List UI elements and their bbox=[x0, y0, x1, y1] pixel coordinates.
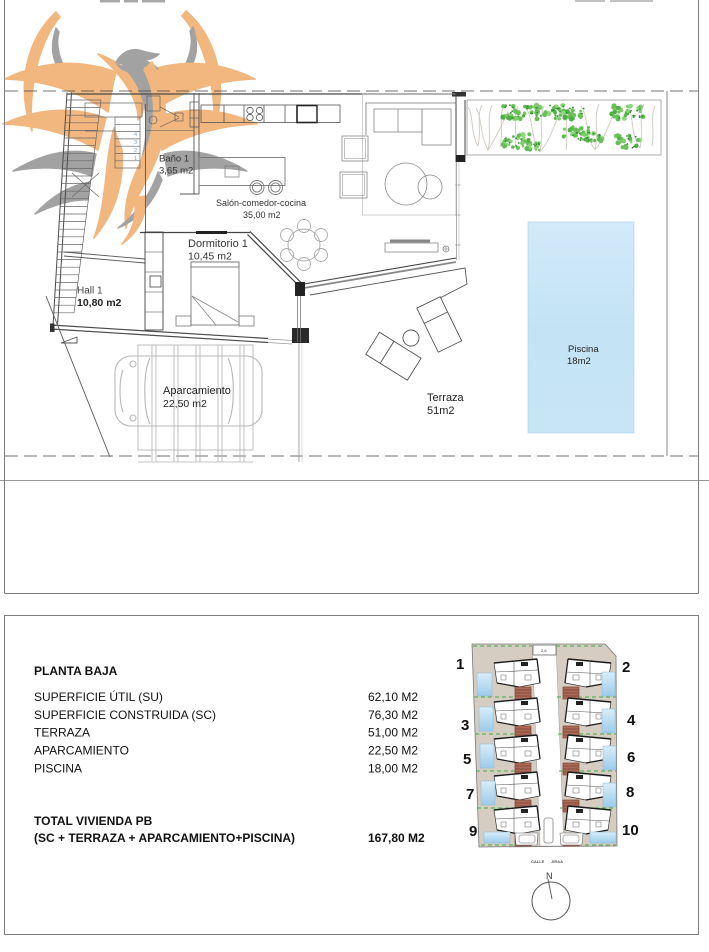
svg-text:3: 3 bbox=[134, 140, 137, 146]
svg-text:18,00 M2: 18,00 M2 bbox=[368, 762, 418, 776]
svg-text:167,80 M2: 167,80 M2 bbox=[368, 831, 425, 845]
svg-text:22,50 M2: 22,50 M2 bbox=[368, 744, 418, 758]
svg-text:1: 1 bbox=[456, 656, 464, 673]
svg-text:2,6: 2,6 bbox=[541, 648, 547, 653]
svg-text:Hall 1: Hall 1 bbox=[77, 286, 103, 297]
svg-text:2: 2 bbox=[622, 659, 630, 676]
svg-text:Aparcamiento: Aparcamiento bbox=[163, 385, 231, 397]
svg-text:TERRAZA: TERRAZA bbox=[34, 726, 90, 740]
svg-text:Terraza: Terraza bbox=[427, 392, 465, 404]
svg-text:18m2: 18m2 bbox=[567, 356, 591, 367]
svg-text:PLANTA BAJA: PLANTA BAJA bbox=[34, 664, 118, 678]
svg-text:76,30 M2: 76,30 M2 bbox=[368, 708, 418, 722]
svg-text:CALLE: CALLE bbox=[531, 859, 545, 864]
svg-text:N: N bbox=[546, 871, 553, 881]
svg-text:Baño 1: Baño 1 bbox=[159, 154, 189, 165]
svg-text:TOTAL VIVIENDA PB: TOTAL VIVIENDA PB bbox=[34, 814, 153, 828]
svg-text:3: 3 bbox=[461, 717, 469, 734]
svg-text:5: 5 bbox=[463, 751, 471, 768]
svg-text:JIRAA: JIRAA bbox=[551, 859, 563, 864]
svg-text:51,00 M2: 51,00 M2 bbox=[368, 726, 418, 740]
svg-text:6: 6 bbox=[627, 749, 635, 766]
svg-text:APARCAMIENTO: APARCAMIENTO bbox=[34, 744, 129, 758]
svg-text:PISCINA: PISCINA bbox=[34, 762, 82, 776]
svg-text:7: 7 bbox=[466, 786, 474, 803]
svg-text:10,80 m2: 10,80 m2 bbox=[77, 297, 122, 309]
svg-text:1: 1 bbox=[134, 156, 137, 162]
svg-text:SUPERFICIE CONSTRUIDA (SC): SUPERFICIE CONSTRUIDA (SC) bbox=[34, 708, 216, 722]
svg-text:Dormitorio 1: Dormitorio 1 bbox=[188, 238, 248, 250]
svg-text:10,45 m2: 10,45 m2 bbox=[188, 251, 232, 263]
svg-text:35,00 m2: 35,00 m2 bbox=[243, 210, 281, 220]
svg-text:SUPERFICIE ÚTIL (SU): SUPERFICIE ÚTIL (SU) bbox=[34, 689, 163, 704]
svg-text:62,10 M2: 62,10 M2 bbox=[368, 690, 418, 704]
svg-text:Salón-comedor-cocina: Salón-comedor-cocina bbox=[216, 198, 306, 208]
svg-text:51m2: 51m2 bbox=[427, 405, 455, 417]
svg-text:22,50 m2: 22,50 m2 bbox=[163, 398, 207, 410]
svg-text:(SC + TERRAZA + APARCAMIENTO+P: (SC + TERRAZA + APARCAMIENTO+PISCINA) bbox=[34, 831, 295, 845]
svg-text:4: 4 bbox=[134, 132, 137, 138]
svg-text:Piscina: Piscina bbox=[568, 344, 599, 355]
svg-text:4: 4 bbox=[627, 712, 636, 729]
svg-text:8: 8 bbox=[626, 784, 634, 801]
svg-text:3,65 m2: 3,65 m2 bbox=[159, 166, 193, 177]
svg-text:2: 2 bbox=[134, 148, 137, 154]
svg-text:9: 9 bbox=[469, 823, 477, 840]
svg-text:10: 10 bbox=[622, 822, 639, 839]
